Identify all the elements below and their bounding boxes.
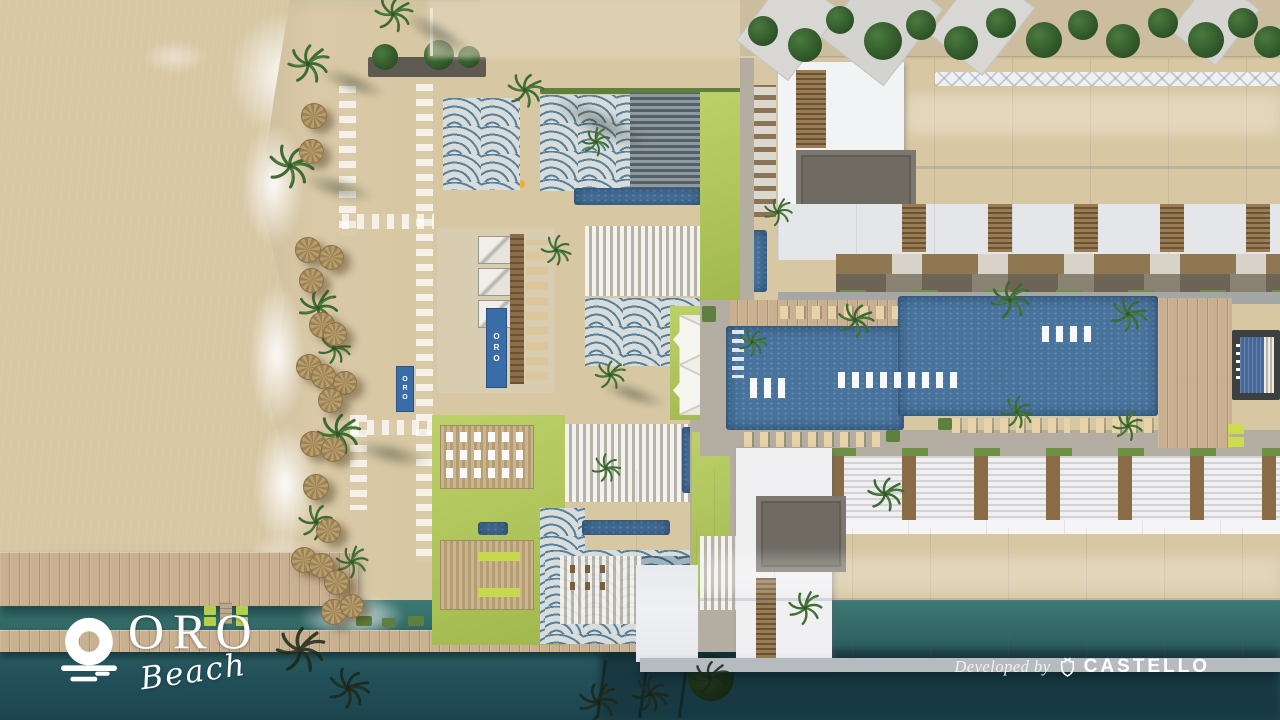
tree-canopy bbox=[1148, 8, 1178, 38]
straw-umbrella bbox=[299, 139, 324, 164]
flag-label: ORO bbox=[402, 376, 409, 403]
wave-crest bbox=[140, 40, 210, 74]
resort-aerial-render: ORO ORO bbox=[0, 0, 1280, 720]
palm-tree-silhouette bbox=[690, 658, 730, 698]
shield-crest-icon bbox=[1060, 657, 1075, 677]
developer-name: CASTELLO bbox=[1084, 656, 1210, 678]
tree-canopy bbox=[1188, 22, 1224, 58]
north-building-lower-band bbox=[778, 204, 1280, 260]
plunge-pool bbox=[478, 522, 508, 535]
in-pool-loungers bbox=[838, 372, 962, 388]
table bbox=[585, 565, 590, 573]
lounger-row bbox=[446, 450, 524, 460]
table bbox=[600, 565, 605, 573]
straw-umbrella bbox=[321, 437, 346, 462]
palm-tree bbox=[985, 275, 1036, 326]
tree-canopy bbox=[372, 44, 398, 70]
tree-canopy bbox=[1068, 10, 1098, 40]
shrub bbox=[356, 616, 372, 626]
tree-canopy bbox=[1026, 22, 1062, 58]
balcony-strip bbox=[836, 254, 1280, 274]
oro-beach-logo: ORO Beach bbox=[52, 596, 312, 718]
pavilion-menu-dots bbox=[1236, 344, 1240, 384]
hedge-square bbox=[938, 418, 952, 430]
south-building-roof-step bbox=[636, 565, 698, 662]
roof-highlight bbox=[905, 95, 1280, 135]
straw-umbrella bbox=[324, 570, 349, 595]
lounger-row bbox=[744, 432, 880, 447]
tree-canopy bbox=[748, 16, 778, 46]
straw-umbrella bbox=[340, 594, 364, 618]
tree-canopy bbox=[788, 28, 822, 62]
in-pool-loungers bbox=[750, 378, 786, 398]
hedge-square bbox=[702, 306, 716, 322]
straw-umbrella bbox=[303, 474, 329, 500]
top-haze bbox=[428, 0, 778, 58]
tree-canopy bbox=[944, 26, 978, 60]
roof-highlight bbox=[700, 556, 1280, 592]
straw-umbrella bbox=[319, 245, 344, 270]
plunge-pool bbox=[574, 188, 702, 205]
beach-flag-banner: ORO bbox=[396, 366, 414, 412]
flag-label: ORO bbox=[492, 332, 501, 365]
lime-lounger-strip bbox=[478, 588, 520, 597]
table bbox=[570, 582, 575, 590]
pavilion-blue-canopy bbox=[1240, 337, 1264, 393]
shrub bbox=[382, 618, 396, 627]
straw-umbrella bbox=[295, 237, 321, 263]
tree-canopy bbox=[826, 6, 854, 34]
unit-louver bbox=[988, 204, 1012, 252]
lounger-row bbox=[446, 432, 524, 442]
shrub bbox=[408, 616, 424, 626]
tower-louver-panel bbox=[796, 70, 826, 148]
table bbox=[570, 565, 575, 573]
lawn-strip bbox=[700, 92, 740, 306]
south-building-roof bbox=[696, 528, 1280, 662]
lounger-row bbox=[446, 468, 524, 478]
straw-umbrella bbox=[301, 103, 327, 129]
tree-canopy bbox=[1106, 24, 1140, 58]
sun-over-sea-logo-icon bbox=[58, 616, 120, 692]
lime-lounger-strip bbox=[478, 552, 520, 561]
lime-lounger-strip bbox=[1228, 437, 1244, 447]
tree-canopy bbox=[986, 8, 1016, 38]
beach-cabana bbox=[478, 236, 512, 264]
straw-umbrella bbox=[318, 388, 343, 413]
table bbox=[585, 582, 590, 590]
lime-lounger-strip bbox=[1228, 424, 1244, 434]
beach-flag-banner: ORO bbox=[486, 308, 507, 388]
roof-serrated-edge bbox=[935, 72, 1280, 86]
straw-pergola bbox=[440, 540, 534, 610]
palm-tree bbox=[593, 358, 627, 392]
bar-counter bbox=[510, 234, 524, 384]
unit-louver bbox=[1246, 204, 1270, 252]
tree-canopy bbox=[906, 10, 936, 40]
palm-tree bbox=[862, 471, 908, 517]
table bbox=[600, 582, 605, 590]
promenade-path bbox=[416, 84, 433, 562]
tree-canopy bbox=[864, 22, 902, 60]
beach-path bbox=[342, 214, 434, 229]
unit-louver bbox=[902, 204, 926, 252]
straw-umbrella bbox=[299, 268, 324, 293]
credit-prefix: Developed by bbox=[954, 657, 1050, 677]
unit-louver bbox=[1074, 204, 1098, 252]
straw-umbrella bbox=[323, 322, 347, 346]
in-pool-loungers bbox=[1042, 326, 1096, 342]
roof-ridge-line bbox=[905, 166, 1280, 169]
hedge-square bbox=[886, 430, 900, 442]
unit-louver bbox=[1160, 204, 1184, 252]
east-wood-deck bbox=[1158, 298, 1232, 448]
developer-credit: Developed by CASTELLO bbox=[954, 652, 1210, 682]
tree-canopy bbox=[1254, 26, 1280, 58]
beach-cabana bbox=[478, 268, 512, 296]
mosaic-terrace bbox=[443, 98, 520, 190]
palm-tree bbox=[285, 41, 331, 87]
pavilion-white-slats bbox=[1264, 337, 1274, 393]
tree-canopy bbox=[1228, 8, 1258, 38]
straw-umbrella bbox=[316, 518, 341, 543]
